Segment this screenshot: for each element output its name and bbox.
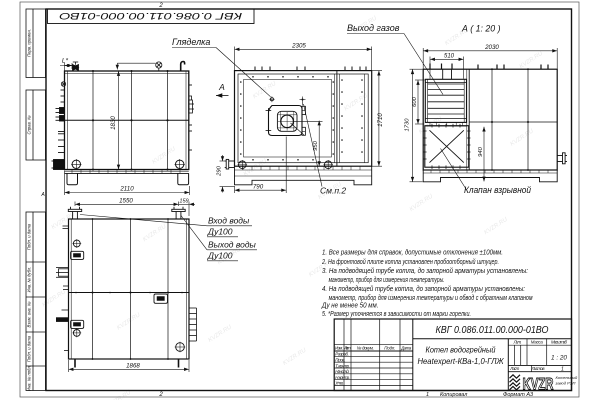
svg-text:А ( 1: 20 ): А ( 1: 20 ) [461,24,500,34]
svg-text:Выход газов: Выход газов [347,23,400,33]
svg-text:Масштаб: Масштаб [551,340,568,345]
svg-text:Лит.: Лит. [513,340,522,345]
svg-text:манометр, прибор для измерения: манометр, прибор для измерения температу… [329,275,445,284]
svg-text:2030: 2030 [484,44,499,51]
svg-text:Изм.: Изм. [335,346,343,351]
svg-text:КВГ 0.086.011.00.000-01ВО: КВГ 0.086.011.00.000-01ВО [58,10,242,21]
svg-text:А: А [218,82,225,92]
svg-text:Подп.: Подп. [384,346,395,351]
svg-text:См.п.2: См.п.2 [320,186,346,196]
svg-text:4. На подводящей трубе котла,: 4. На подводящей трубе котла, до запорно… [322,284,525,293]
svg-text:Нач.отд.: Нач.отд. [335,369,349,374]
svg-text:1868: 1868 [126,362,140,369]
svg-text:Н. контр.: Н. контр. [335,375,350,380]
svg-text:Вход воды: Вход воды [208,216,250,226]
svg-text:Гляделка: Гляделка [172,37,210,47]
svg-text:Перв. примен.: Перв. примен. [27,29,32,57]
svg-text:Инв. № дубл.: Инв. № дубл. [27,267,32,293]
svg-text:2110: 2110 [119,186,134,193]
svg-text:2. На фронтовой плите котла ус: 2. На фронтовой плите котла установлен п… [321,257,499,266]
svg-text:Лист: Лист [343,346,351,351]
svg-text:Т. контр.: Т. контр. [335,363,350,368]
svg-text:L*: L* [62,58,69,65]
svg-text:Листов: Листов [531,366,546,371]
svg-text:Котельный: Котельный [556,375,579,380]
svg-text:КВГ 0.086.011.00.000-01ВО: КВГ 0.086.011.00.000-01ВО [436,325,549,336]
svg-text:Пров.: Пров. [335,358,345,363]
svg-text:2: 2 [158,392,163,398]
svg-text:№ докум.: № докум. [357,346,374,351]
svg-text:завод РЭП: завод РЭП [555,381,576,386]
svg-text:А: А [40,192,45,198]
svg-text:790: 790 [253,183,264,190]
svg-text:Инв. № подл.: Инв. № подл. [27,365,32,391]
svg-text:Выход воды: Выход воды [208,240,257,250]
svg-text:1 : 20: 1 : 20 [551,355,567,362]
svg-text:Ду100: Ду100 [207,251,233,261]
svg-text:Масса: Масса [531,340,544,345]
svg-text:1830: 1830 [110,116,117,130]
svg-text:1730: 1730 [404,118,410,132]
svg-text:1710: 1710 [377,113,384,127]
svg-text:5. *Размер уточняется в зависи: 5. *Размер уточняется в зависимости от м… [322,309,471,318]
svg-text:Лист: Лист [509,366,519,371]
svg-text:Справ. №: Справ. № [27,115,32,134]
svg-text:600: 600 [412,96,418,106]
svg-text:159: 159 [179,198,188,204]
svg-text:Дата: Дата [400,346,412,351]
svg-text:Копировал: Копировал [440,392,467,398]
svg-text:1. Все размеры для справок, до: 1. Все размеры для справок, допустимые о… [322,248,503,257]
svg-text:Утв.: Утв. [335,381,343,386]
svg-text:Котел водогрейный: Котел водогрейный [426,344,496,354]
svg-text:1: 1 [561,366,564,372]
svg-text:3. На подводящей трубе котла,: 3. На подводящей трубе котла, до запорно… [322,266,528,275]
svg-text:1550: 1550 [119,197,133,204]
svg-text:Heatexpert-КВа-1,0-ГЛЖ: Heatexpert-КВа-1,0-ГЛЖ [418,356,505,366]
svg-text:Разраб.: Разраб. [335,352,349,357]
svg-text:950: 950 [313,140,319,150]
svg-text:Взам. инв. №: Взам. инв. № [27,301,32,327]
svg-text:KVZR: KVZR [523,374,554,393]
svg-text:510: 510 [444,54,455,60]
svg-text:1: 1 [426,392,429,398]
svg-text:2: 2 [158,3,163,9]
svg-text:2305: 2305 [291,42,306,49]
svg-text:290: 290 [217,165,223,176]
svg-text:Клапан взрывной: Клапан взрывной [464,185,531,195]
svg-text:Ду100: Ду100 [207,227,233,237]
svg-text:Подп. и дата: Подп. и дата [27,223,32,250]
svg-text:940: 940 [478,146,484,156]
svg-text:Подп. и дата: Подп. и дата [27,335,32,362]
